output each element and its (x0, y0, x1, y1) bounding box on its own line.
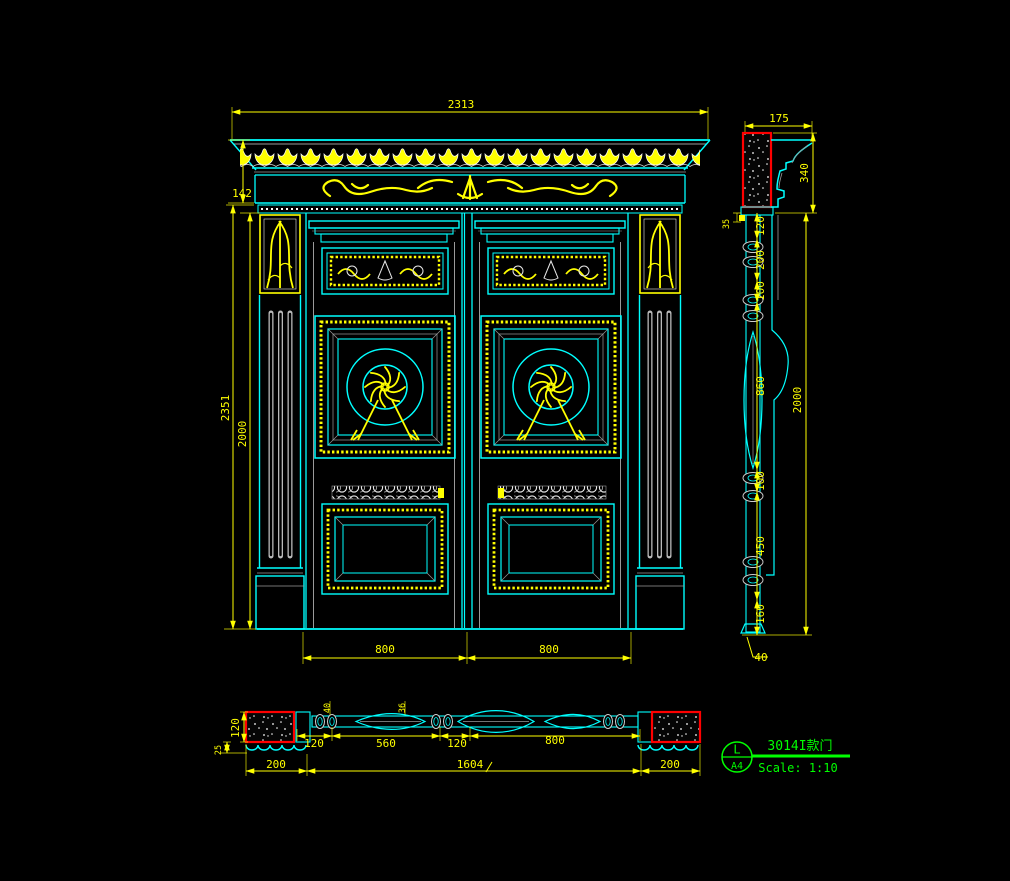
dim-jamb-width: 120 (304, 737, 324, 750)
dim-left-leaf-width: 800 (375, 643, 395, 656)
dim-panel-width: 560 (376, 737, 396, 750)
dim-frame-depth: 120 (229, 718, 242, 738)
scale-label: Scale: 1:10 (758, 761, 837, 775)
dim-sill-depth: 25 (214, 745, 224, 755)
anthemion-band (240, 146, 700, 167)
background (0, 0, 1010, 881)
band-end-right (498, 488, 504, 498)
dim-cornice-height: 340 (798, 163, 811, 183)
dim-leaf-width: 800 (545, 734, 565, 747)
dim-frieze-height: 142 (232, 187, 252, 200)
dim-stile-width: 120 (447, 737, 467, 750)
cad-drawing-canvas: 2313 142 2351 2000 800 800 (0, 0, 1010, 881)
form-letter: L (733, 743, 740, 757)
dim-seg-3: 100 (754, 281, 767, 301)
dim-detail-mid: 36 (398, 703, 408, 713)
dim-right-leaf-width: 800 (539, 643, 559, 656)
dim-wall-left: 200 (266, 758, 286, 771)
cad-svg: 2313 142 2351 2000 800 800 (0, 0, 1010, 881)
product-name: 3014I款门 (767, 739, 832, 754)
dim-seg-1: 120 (754, 216, 767, 236)
wall-section-top (743, 133, 771, 207)
dim-overall-width: 2313 (448, 98, 475, 111)
dim-door-height: 2000 (236, 421, 249, 448)
dim-cornice-depth: 175 (769, 112, 789, 125)
dim-seg-5: 100 (754, 471, 767, 491)
band-end-left (438, 488, 444, 498)
wall-section-right (652, 712, 700, 742)
dim-top-gap: 35 (722, 219, 732, 229)
dim-frame-total: 1604 (457, 758, 484, 771)
dim-detail-top: 40 (323, 703, 333, 713)
dim-bottom-thickness: 40 (754, 651, 767, 664)
dim-side-total-height: 2000 (791, 387, 804, 414)
dim-overall-height: 2351 (219, 395, 232, 422)
dim-seg-2: 200 (754, 250, 767, 270)
wall-section-left (246, 712, 294, 742)
dim-seg-4: 860 (754, 376, 767, 396)
dim-seg-6: 450 (754, 536, 767, 556)
paper-size: A4 (731, 761, 743, 772)
dim-seg-7: 160 (754, 604, 767, 624)
dim-wall-right: 200 (660, 758, 680, 771)
